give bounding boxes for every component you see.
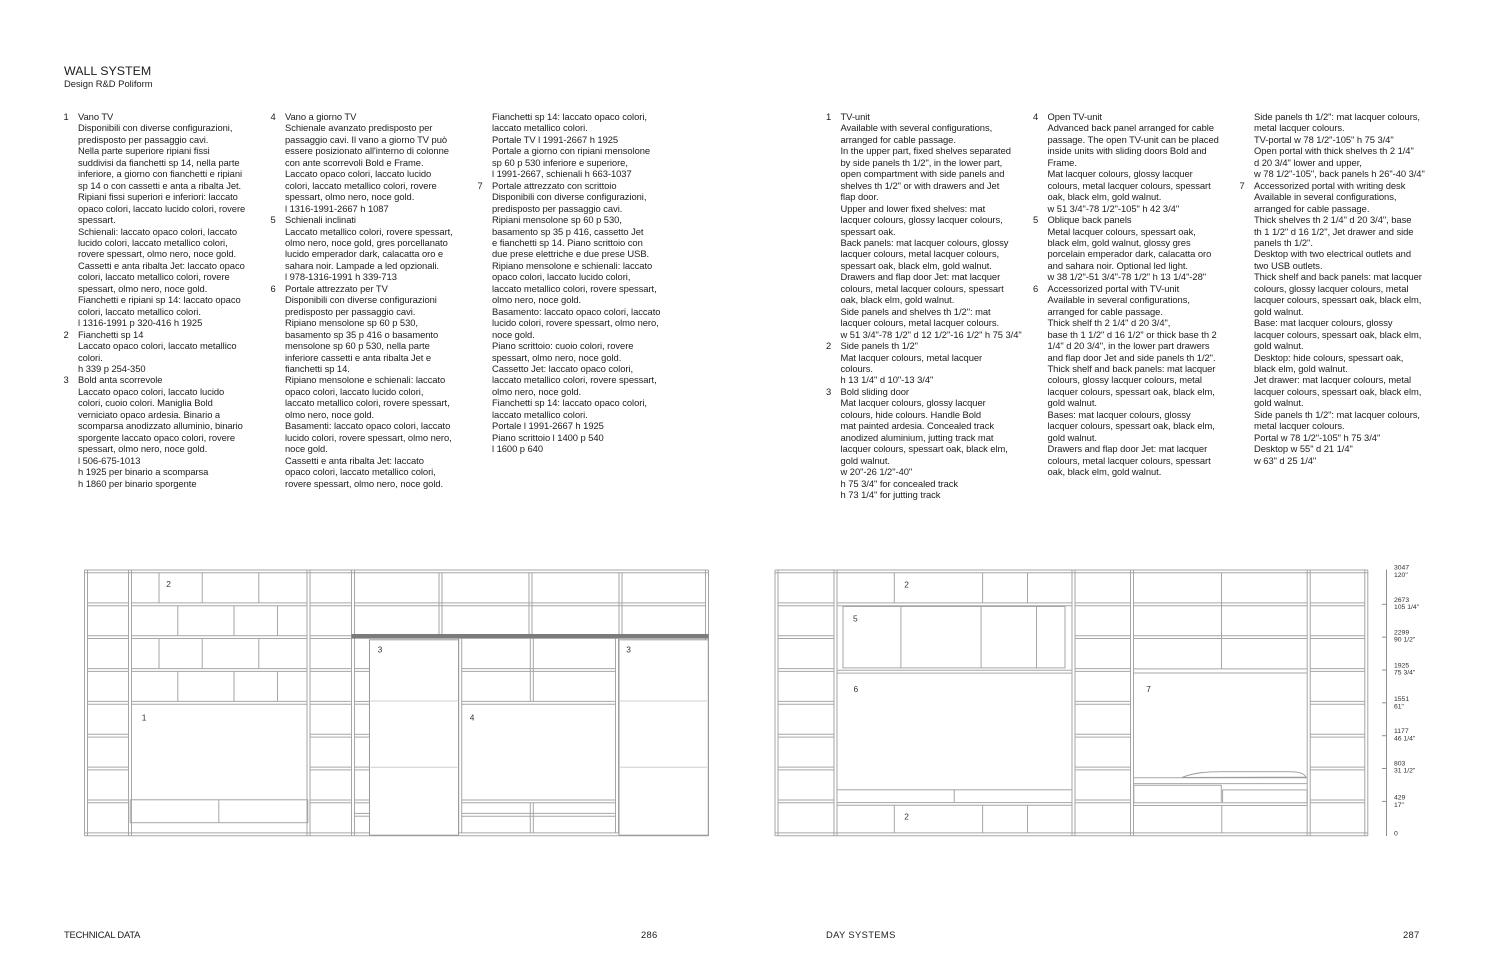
svg-text:7: 7 [1146, 684, 1151, 694]
svg-text:1: 1 [142, 712, 147, 722]
svg-text:5: 5 [853, 613, 858, 623]
svg-text:1551: 1551 [1394, 696, 1409, 703]
svg-text:61": 61" [1394, 703, 1405, 710]
svg-text:429: 429 [1394, 795, 1406, 802]
svg-text:120": 120" [1394, 572, 1408, 579]
svg-text:1925: 1925 [1394, 662, 1409, 669]
svg-text:105 1/4": 105 1/4" [1394, 604, 1420, 611]
svg-text:75 3/4": 75 3/4" [1394, 670, 1416, 677]
svg-text:2: 2 [904, 580, 909, 590]
svg-text:2: 2 [166, 579, 171, 589]
svg-text:3: 3 [626, 644, 631, 654]
svg-text:17": 17" [1394, 802, 1405, 809]
svg-text:3: 3 [378, 644, 383, 654]
svg-text:2: 2 [904, 812, 909, 822]
svg-text:31 1/2": 31 1/2" [1394, 768, 1416, 775]
svg-text:90 1/2": 90 1/2" [1394, 637, 1416, 644]
svg-text:2299: 2299 [1394, 629, 1409, 636]
svg-text:4: 4 [470, 712, 475, 722]
svg-text:2673: 2673 [1394, 597, 1409, 604]
svg-text:46 1/4": 46 1/4" [1394, 735, 1416, 742]
svg-text:1177: 1177 [1394, 728, 1409, 735]
svg-text:6: 6 [854, 684, 859, 694]
svg-text:0: 0 [1394, 831, 1398, 838]
svg-text:803: 803 [1394, 760, 1406, 767]
svg-text:3047: 3047 [1394, 565, 1409, 572]
